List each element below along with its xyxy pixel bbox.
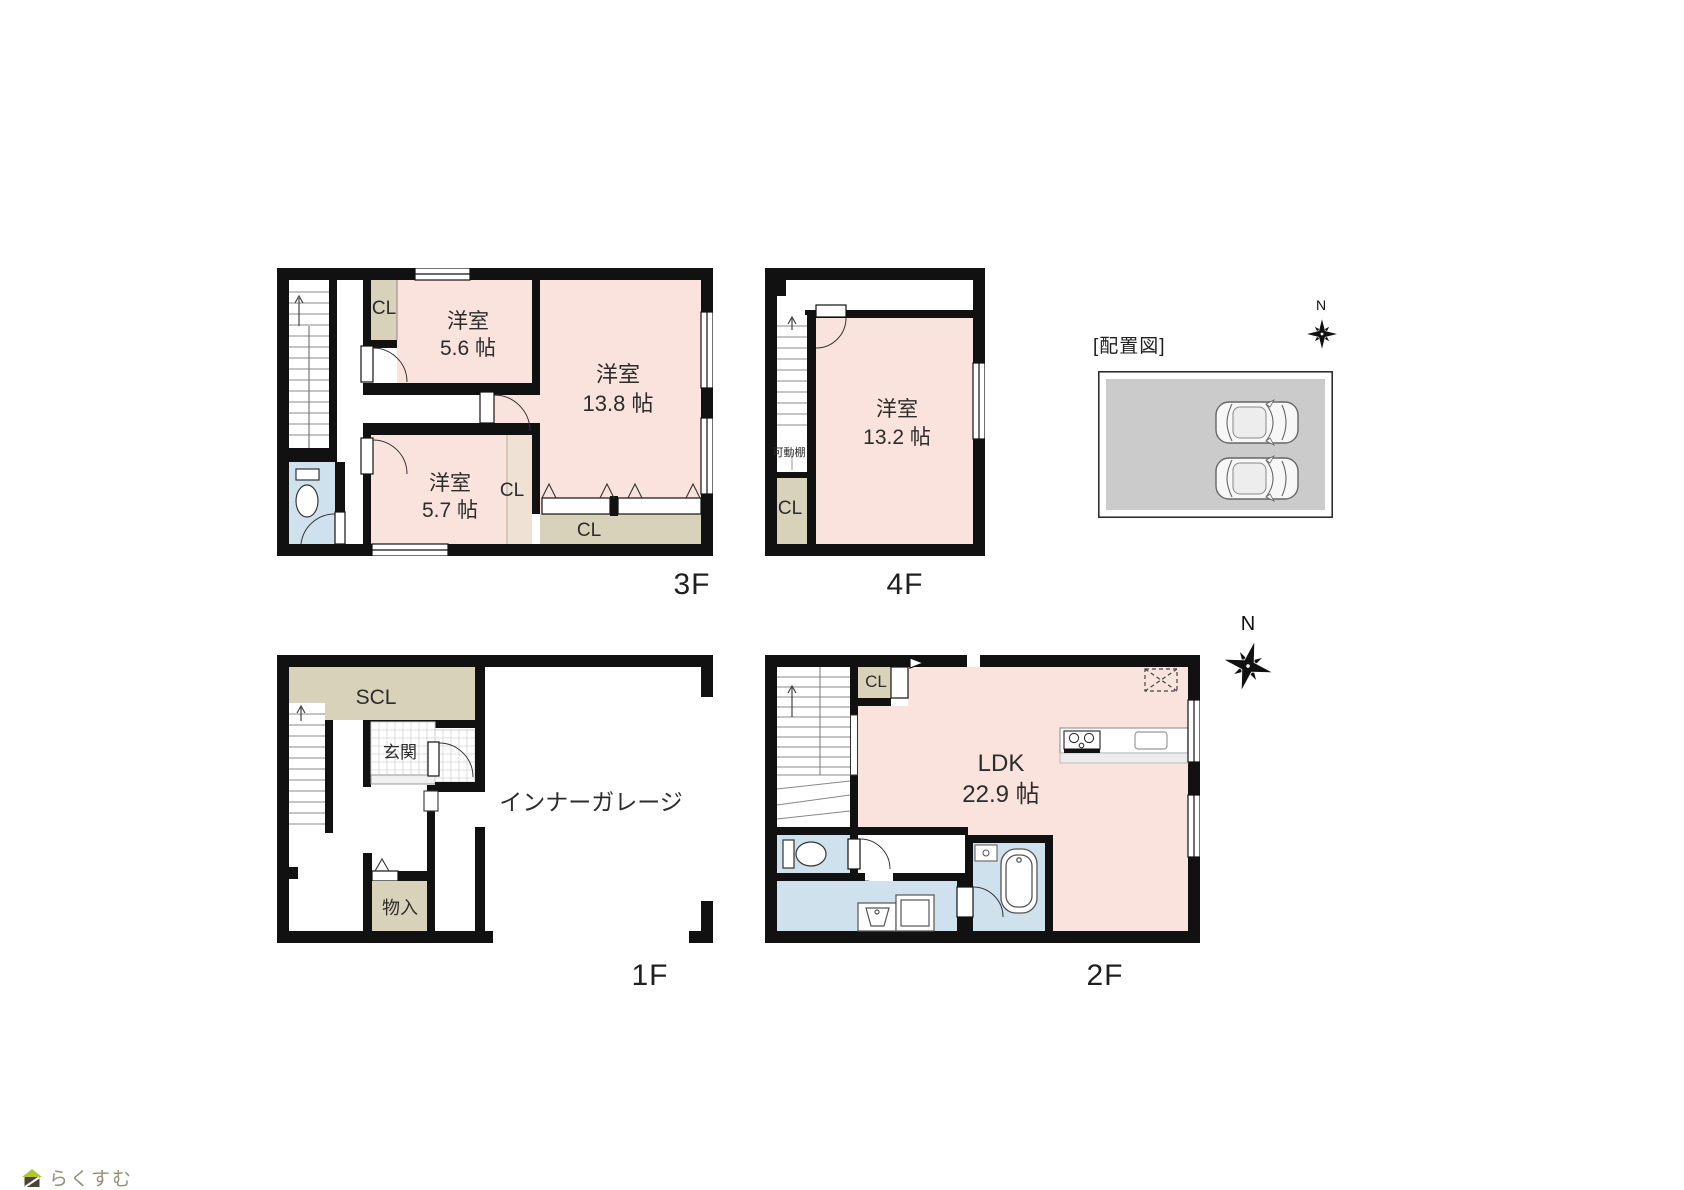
room-label-shelf: 可動棚	[764, 447, 814, 461]
room-label-garage: インナーガレージ	[481, 788, 701, 817]
north-label: N	[1230, 612, 1266, 637]
entrance-step	[371, 775, 435, 784]
room-label-closet-top: CL	[364, 297, 404, 321]
toilet-icon	[296, 469, 319, 517]
kitchen-counter-icon	[1060, 728, 1188, 763]
car-icon	[1216, 400, 1298, 445]
room-label-ldk: LDK 22.9 帖	[931, 748, 1071, 810]
room-label-scl: SCL	[336, 685, 416, 711]
porch-tile	[435, 730, 475, 782]
floor-label-2f: 2F	[1075, 957, 1135, 995]
stairs-icon	[777, 315, 807, 430]
interior-window-icon	[424, 791, 438, 811]
room-label-closet-4f: CL	[770, 497, 810, 521]
stairs-icon	[289, 280, 329, 448]
room-label-storage: 物入	[365, 897, 435, 920]
sink-icon	[1135, 732, 1167, 749]
window-icon	[973, 363, 985, 439]
ldk-room	[908, 667, 1188, 706]
logo-text: らくすむ	[49, 1164, 133, 1190]
opening-icon	[851, 715, 858, 775]
compass-rose-icon	[1302, 314, 1342, 354]
floor-label-3f: 3F	[662, 566, 722, 604]
compass-rose-icon	[1218, 636, 1278, 696]
logo: らくすむ	[22, 1164, 133, 1190]
room-label-closet-2f: CL	[856, 671, 896, 692]
room-label-bedroom-4f: 洋室 13.2 帖	[837, 396, 957, 452]
stairs-icon	[289, 703, 325, 833]
bath-counter-icon	[975, 845, 997, 861]
site-plan-diagram	[1098, 371, 1333, 518]
floor-label-1f: 1F	[620, 957, 680, 995]
room-label-bedroom-a: 洋室 5.6 帖	[408, 308, 528, 362]
closet-bottom	[540, 514, 701, 544]
site-plan-title: [配置図]	[1093, 335, 1166, 359]
bathtub-icon	[1001, 849, 1037, 913]
logo-house-icon	[22, 1168, 42, 1188]
north-label: N	[1307, 297, 1335, 315]
floorplan-sheet: [配置図] N N CL	[0, 0, 1684, 1190]
vanity-sink-icon	[858, 903, 896, 931]
room-label-entrance: 玄関	[365, 742, 435, 763]
room-label-closet-bottom: CL	[569, 519, 609, 543]
stairs-icon	[777, 667, 850, 827]
washing-machine-icon	[896, 895, 934, 931]
floor-label-4f: 4F	[875, 566, 935, 604]
toilet-icon	[783, 840, 826, 868]
room-label-closet-side: CL	[492, 479, 532, 503]
car-icon	[1216, 456, 1298, 501]
room-label-bedroom-b: 洋室 13.8 帖	[558, 360, 678, 418]
